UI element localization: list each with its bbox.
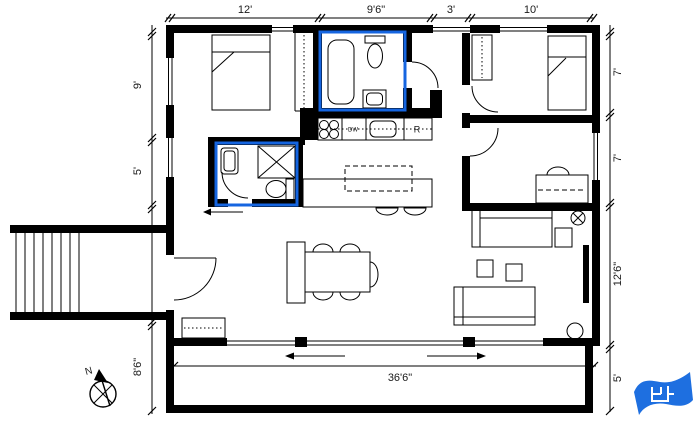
floor-plan-page: 12' 9'6" 3' 10' 9' 5' 8'6" 7' 7' 12'6" 5… bbox=[0, 0, 697, 427]
dim-bottom-1: 36'6" bbox=[388, 372, 412, 384]
dim-left-3: 8'6" bbox=[132, 358, 144, 376]
tv bbox=[583, 245, 589, 303]
door-jamb bbox=[463, 337, 475, 347]
dim-right-1: 7' bbox=[612, 68, 624, 76]
dishwasher-label: DW bbox=[348, 128, 358, 134]
door-jamb bbox=[295, 337, 307, 347]
floor-plan-canvas: 12' 9'6" 3' 10' 9' 5' 8'6" 7' 7' 12'6" 5… bbox=[0, 0, 697, 427]
dim-top-1: 12' bbox=[238, 4, 252, 16]
dim-right-2: 7' bbox=[612, 154, 624, 162]
dim-right-4: 5' bbox=[612, 374, 624, 382]
dim-top-3: 3' bbox=[447, 4, 455, 16]
dim-top-2: 9'6" bbox=[367, 4, 385, 16]
deck-wall-right bbox=[585, 345, 593, 413]
deck-wall-bottom bbox=[166, 405, 593, 413]
dim-left-1: 9' bbox=[132, 81, 144, 89]
dim-right-3: 12'6" bbox=[612, 262, 624, 286]
dim-top-4: 10' bbox=[524, 4, 538, 16]
dim-left-2: 5' bbox=[132, 167, 144, 175]
